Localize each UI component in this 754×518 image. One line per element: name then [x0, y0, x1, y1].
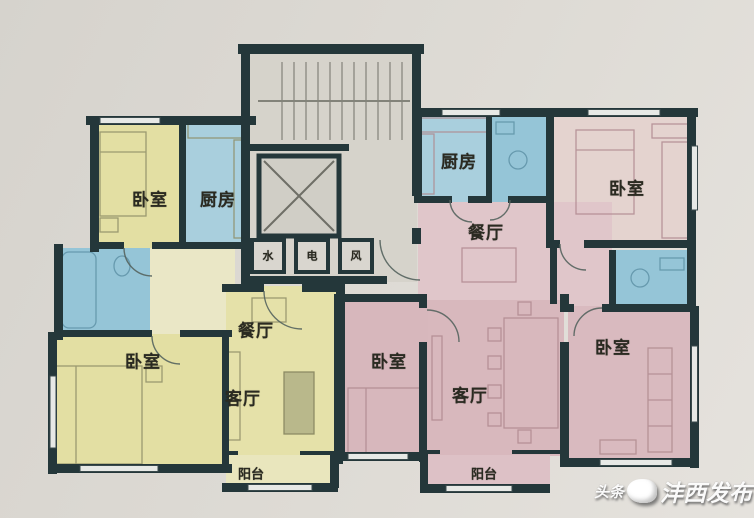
watermark-prefix: 头条 [594, 481, 624, 502]
window-icon [588, 110, 660, 116]
watermark: 头条 沣西发布 [594, 474, 752, 508]
elevator-icon [259, 156, 339, 236]
room-label-right-dining: 餐厅 [468, 226, 504, 243]
room-label-right-kitchen: 厨房 [441, 155, 477, 172]
window-icon [100, 118, 160, 124]
room-label-left-balcony: 阳台 [238, 469, 264, 482]
room-label-right-living: 客厅 [452, 389, 488, 406]
room-left-bedroom-top [92, 120, 184, 248]
room-label-left-kitchen: 厨房 [200, 193, 236, 210]
watermark-main: 沣西发布 [660, 474, 752, 508]
window-icon [692, 146, 698, 210]
shaft-label-electric: 电 [307, 251, 318, 262]
room-label-right-bedroom-bottom: 卧室 [595, 341, 631, 358]
shaft-label-air: 风 [351, 251, 362, 262]
room-label-left-bedroom-bottom: 卧室 [125, 355, 161, 372]
room-label-left-living: 客厅 [225, 392, 261, 409]
room-right-living [428, 300, 564, 456]
window-icon [348, 454, 408, 460]
window-icon [600, 460, 672, 466]
floor-plan: 卧室 厨房 卧室 餐厅 客厅 阳台 水 电 风 厨房 餐厅 卧室 卧室 客厅 卧… [0, 0, 754, 518]
shaft-label-water: 水 [263, 251, 274, 262]
room-label-left-dining: 餐厅 [238, 324, 274, 341]
room-label-right-bedroom-mid: 卧室 [371, 355, 407, 372]
window-icon [442, 110, 500, 116]
room-right-bedroom-bottom [568, 306, 696, 460]
room-right-bathroom [615, 250, 693, 308]
room-right-hall [548, 202, 612, 306]
room-right-dining [418, 202, 558, 302]
room-label-right-bedroom-top: 卧室 [609, 182, 645, 199]
room-label-right-balcony: 阳台 [471, 469, 497, 482]
toutiao-logo-icon [627, 479, 657, 503]
window-icon [50, 376, 56, 448]
window-icon [248, 485, 312, 491]
room-right-bath-top [492, 114, 550, 202]
room-left-bathroom [56, 248, 150, 334]
window-icon [446, 486, 512, 492]
window-icon [80, 466, 158, 472]
room-label-left-bedroom-top: 卧室 [132, 193, 168, 210]
room-right-bedroom-mid [340, 300, 428, 458]
tv-cabinet-icon [284, 372, 314, 434]
room-left-kitchen [184, 120, 250, 248]
window-icon [692, 346, 698, 422]
floor-plan-drawing [0, 0, 754, 518]
